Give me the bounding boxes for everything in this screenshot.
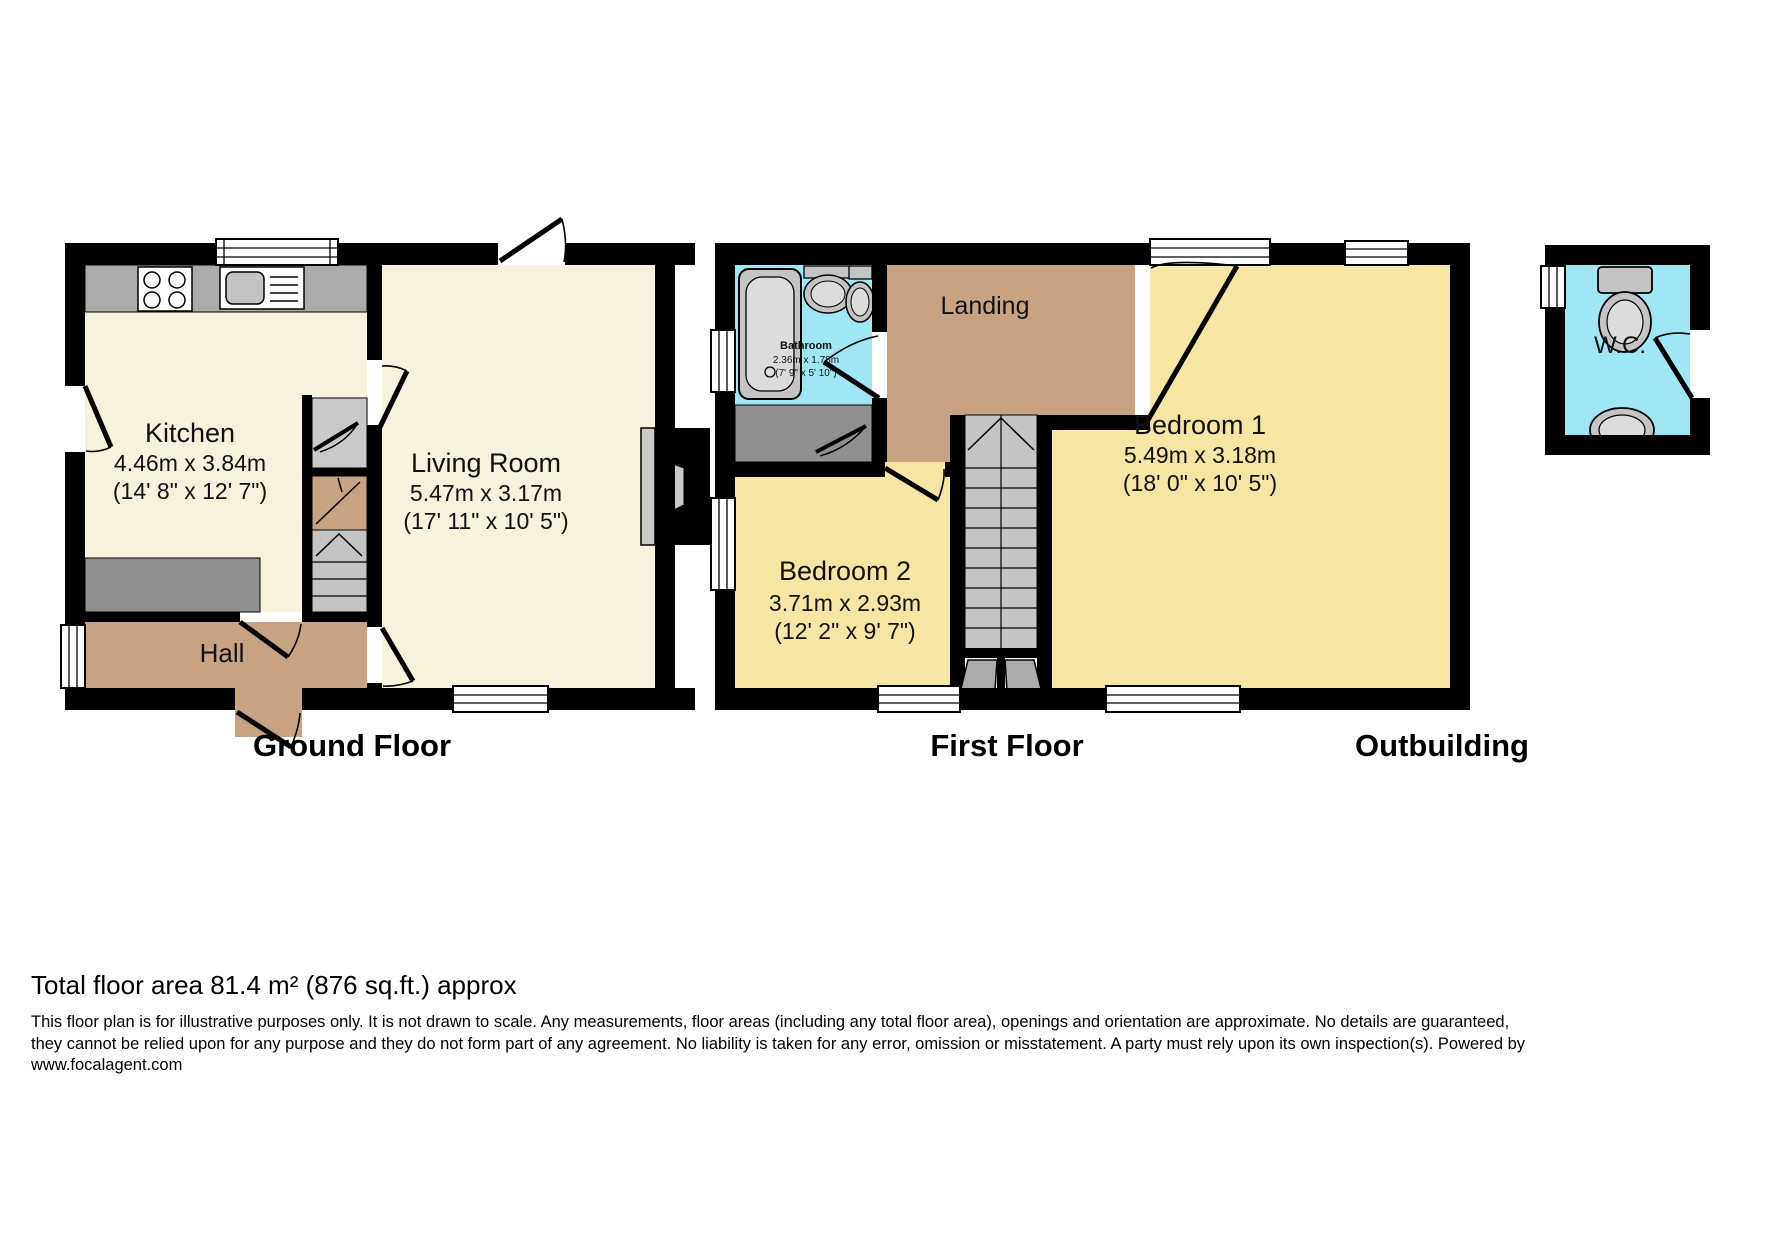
landing-label: Landing — [941, 292, 1030, 321]
window — [453, 686, 548, 712]
floorplan-graphics — [0, 0, 1771, 830]
disclaimer-line-2: they cannot be relied upon for any purpo… — [31, 1034, 1731, 1056]
window — [216, 239, 338, 265]
hall-label: Hall — [200, 638, 245, 669]
first-floor-title: First Floor — [930, 728, 1083, 764]
ground-stairs — [302, 395, 367, 612]
landing-room — [887, 265, 1135, 415]
window — [878, 686, 960, 712]
bathroom-label: Bathroom — [780, 340, 832, 352]
disclaimer-text: This floor plan is for illustrative purp… — [31, 1012, 1731, 1077]
bathroom-metric: 2.36m x 1.78m — [773, 355, 839, 366]
bedroom1-label: Bedroom 1 — [1134, 410, 1266, 441]
sink-icon — [220, 267, 304, 309]
kitchen-counter — [85, 265, 367, 312]
window — [1345, 241, 1408, 265]
window — [711, 330, 735, 392]
kitchen-unit — [85, 558, 260, 612]
bedroom1-imperial: (18' 0" x 10' 5") — [1123, 470, 1277, 497]
disclaimer-line-1: This floor plan is for illustrative purp… — [31, 1012, 1731, 1034]
window — [711, 498, 735, 590]
ground-floor-title: Ground Floor — [253, 728, 451, 764]
fireplace — [641, 428, 710, 545]
outbuilding-title: Outbuilding — [1355, 728, 1529, 764]
window — [61, 625, 85, 688]
window — [1541, 266, 1565, 308]
living-room-imperial: (17' 11" x 10' 5") — [403, 508, 568, 535]
kitchen-imperial: (14' 8" x 12' 7") — [113, 478, 267, 505]
floorplan-page: { "ground_floor": { "label": "Ground Flo… — [0, 0, 1771, 1239]
sink-icon — [804, 266, 852, 313]
wc-label: W.C. — [1594, 332, 1646, 360]
bedroom2-imperial: (12' 2" x 9' 7") — [774, 618, 915, 645]
bathroom-imperial: (7' 9" x 5' 10") — [775, 368, 837, 379]
window — [1106, 686, 1240, 712]
disclaimer-line-3: www.focalagent.com — [31, 1055, 1731, 1077]
bedroom2-metric: 3.71m x 2.93m — [769, 590, 921, 617]
door — [500, 219, 566, 262]
hob-icon — [138, 267, 192, 311]
bedroom1-metric: 5.49m x 3.18m — [1124, 442, 1276, 469]
kitchen-metric: 4.46m x 3.84m — [114, 450, 266, 477]
window — [1150, 239, 1270, 265]
kitchen-label: Kitchen — [145, 418, 235, 449]
bedroom2-label: Bedroom 2 — [779, 556, 911, 587]
first-stairs — [965, 415, 1037, 655]
total-floor-area: Total floor area 81.4 m² (876 sq.ft.) ap… — [31, 970, 517, 1001]
landing-room — [887, 415, 950, 462]
bedroom1-room — [1150, 265, 1450, 430]
toilet-icon — [846, 266, 874, 322]
living-room-label: Living Room — [411, 448, 561, 479]
living-room-metric: 5.47m x 3.17m — [410, 480, 562, 507]
bathtub-icon — [739, 269, 801, 399]
